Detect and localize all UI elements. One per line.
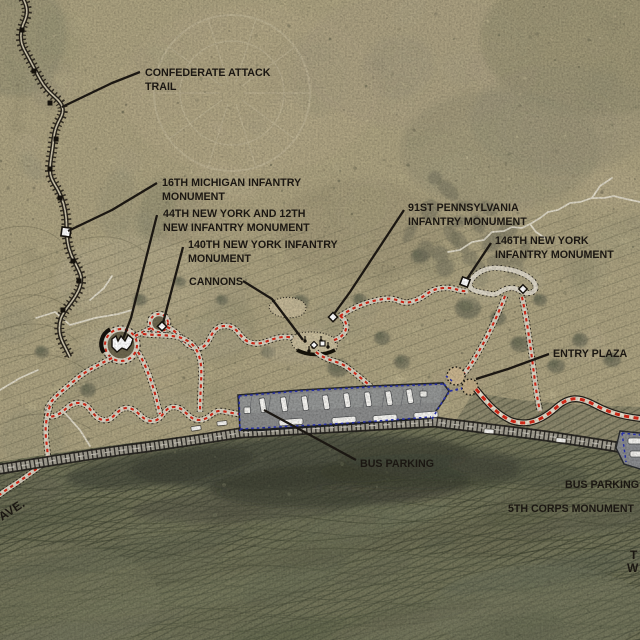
svg-text:146TH NEW YORK: 146TH NEW YORK xyxy=(495,235,589,247)
svg-text:140TH NEW YORK INFANTRY: 140TH NEW YORK INFANTRY xyxy=(188,239,338,251)
svg-text:TRAIL: TRAIL xyxy=(145,81,177,93)
svg-text:5TH CORPS MONUMENT: 5TH CORPS MONUMENT xyxy=(508,503,634,515)
svg-text:NEW INFANTRY MONUMENT: NEW INFANTRY MONUMENT xyxy=(163,222,310,234)
svg-text:MONUMENT: MONUMENT xyxy=(162,191,225,203)
svg-text:CONFEDERATE ATTACK: CONFEDERATE ATTACK xyxy=(145,67,271,79)
svg-text:BUS PARKING: BUS PARKING xyxy=(360,458,434,470)
svg-text:44TH NEW YORK AND 12TH: 44TH NEW YORK AND 12TH xyxy=(163,208,306,220)
svg-text:INFANTRY MONUMENT: INFANTRY MONUMENT xyxy=(408,216,527,228)
svg-text:16TH MICHIGAN INFANTRY: 16TH MICHIGAN INFANTRY xyxy=(162,177,301,189)
svg-text:91ST PENNSYLVANIA: 91ST PENNSYLVANIA xyxy=(408,202,519,214)
svg-text:W: W xyxy=(627,561,639,575)
svg-text:INFANTRY MONUMENT: INFANTRY MONUMENT xyxy=(495,249,614,261)
svg-text:CANNONS: CANNONS xyxy=(189,276,243,288)
svg-text:ENTRY PLAZA: ENTRY PLAZA xyxy=(553,348,628,360)
svg-text:T: T xyxy=(630,548,638,562)
svg-text:BUS PARKING: BUS PARKING xyxy=(565,479,639,491)
svg-text:MONUMENT: MONUMENT xyxy=(188,253,251,265)
